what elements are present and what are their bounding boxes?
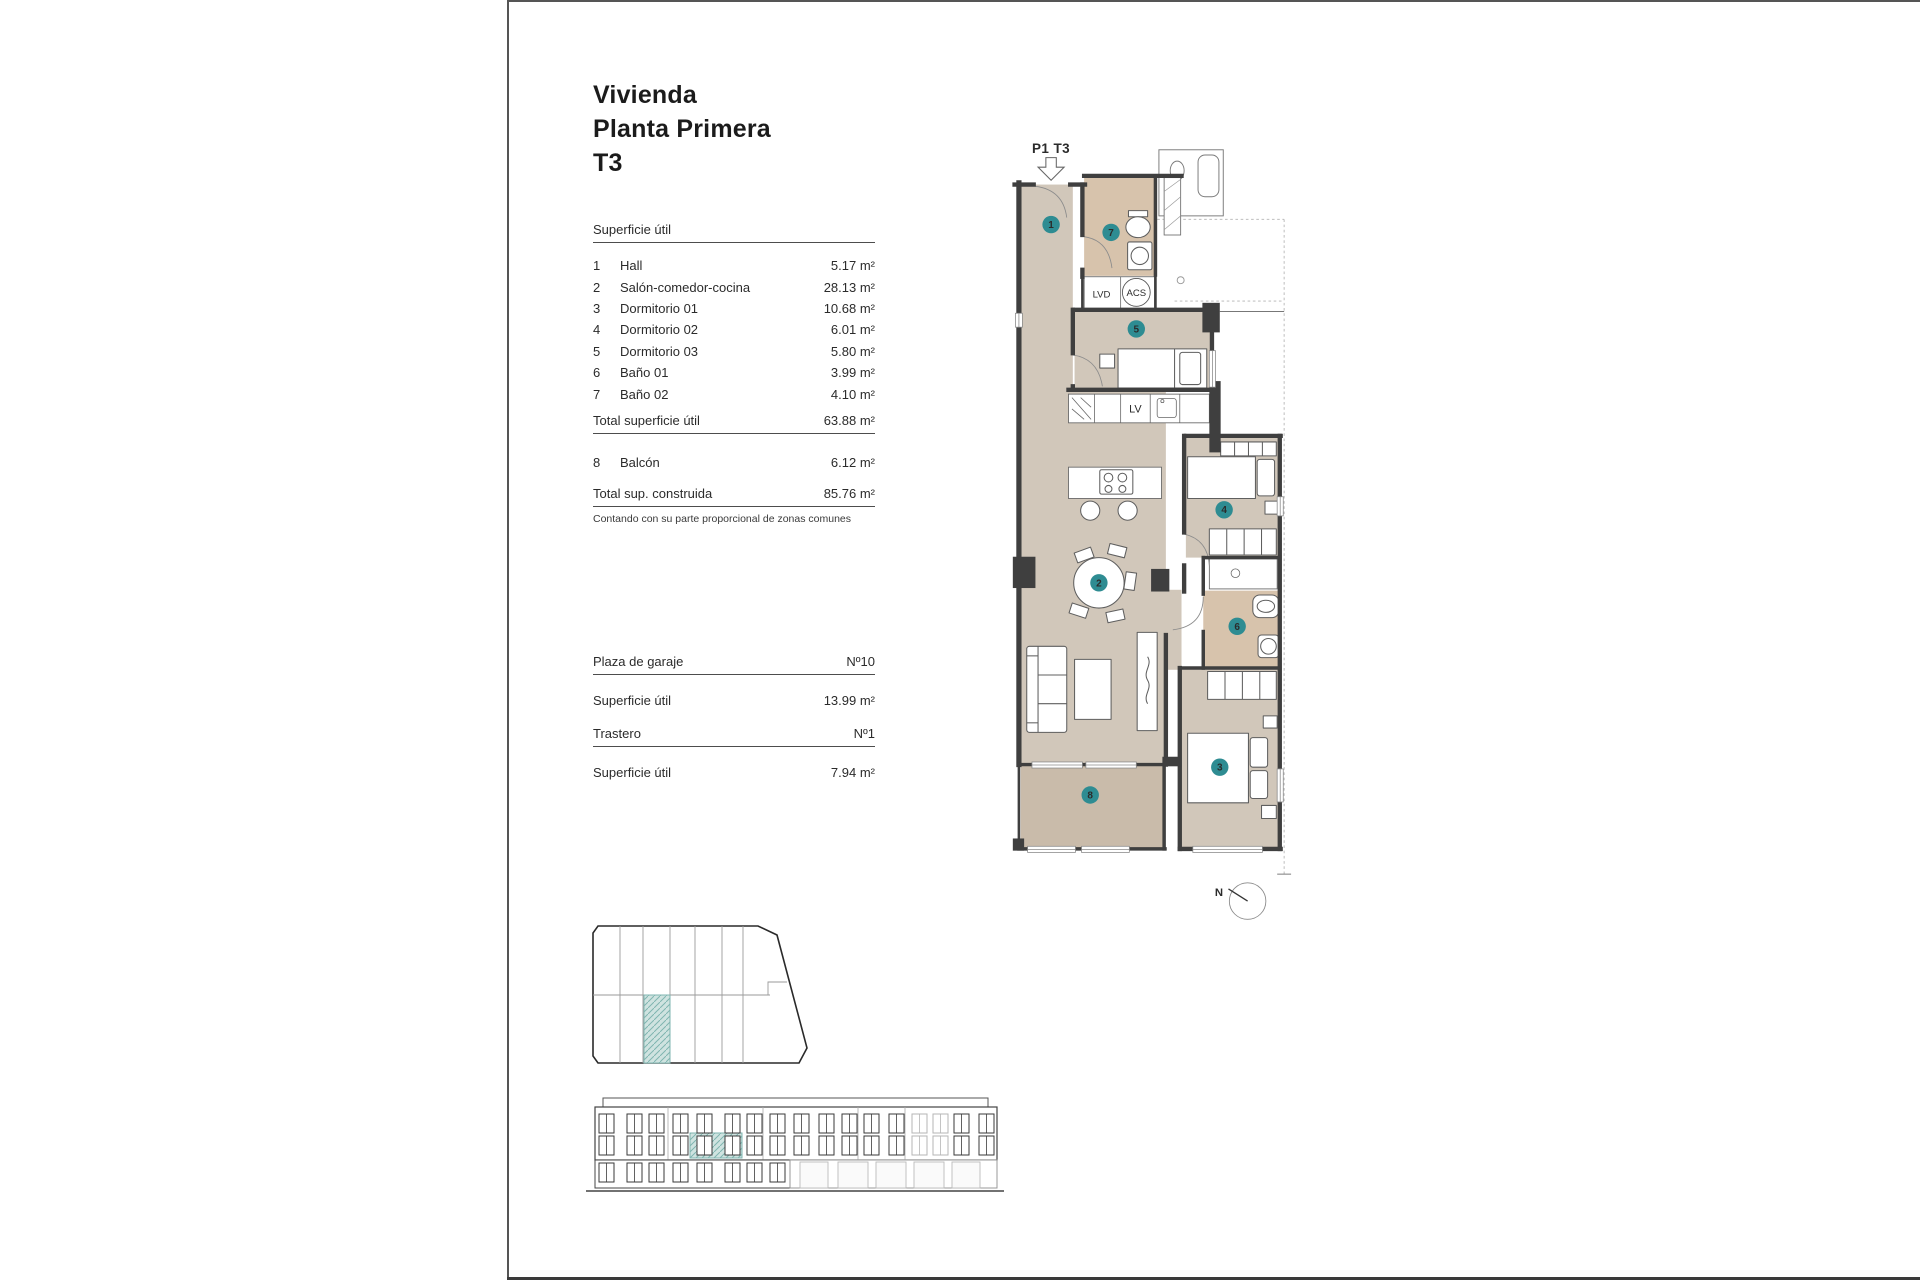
table-header: Superficie útil <box>593 222 875 243</box>
nightstand <box>1263 716 1277 728</box>
unit-label: P1 T3 <box>1032 141 1070 156</box>
tv-unit <box>1137 632 1157 730</box>
storage-section: Trastero Nº1 Superficie útil 7.94 m² <box>593 726 875 780</box>
title-line-3: T3 <box>593 146 771 180</box>
svg-text:7: 7 <box>1108 228 1114 239</box>
room-marker-4: 4 <box>1215 501 1232 518</box>
row-num: 8 <box>593 455 620 470</box>
svg-text:2: 2 <box>1096 578 1102 589</box>
nightstand <box>1262 805 1277 818</box>
garage-number: Nº10 <box>846 654 875 669</box>
washer-label: LVD <box>1093 290 1111 301</box>
table-row: 1 Hall 5.17 m² <box>593 255 875 276</box>
total-built-row: Total sup. construida 85.76 m² Contando … <box>593 486 875 525</box>
row-num: 1 <box>593 258 620 273</box>
row-label: Baño 01 <box>620 365 831 380</box>
stool <box>1118 501 1137 520</box>
table-row: 5 Dormitorio 03 5.80 m² <box>593 341 875 362</box>
row-label: Dormitorio 01 <box>620 301 824 316</box>
room-marker-5: 5 <box>1128 320 1145 337</box>
balcony-row: 8 Balcón 6.12 m² <box>593 452 875 473</box>
row-num: 5 <box>593 344 620 359</box>
table-row: 7 Baño 02 4.10 m² <box>593 383 875 404</box>
toilet-tank <box>1128 211 1147 217</box>
row-value: 6.12 m² <box>831 455 875 470</box>
svg-text:8: 8 <box>1087 790 1093 801</box>
closet-strip <box>1209 529 1276 555</box>
row-value: 4.10 m² <box>831 387 875 402</box>
north-label: N <box>1215 887 1223 899</box>
footprint-outline <box>593 926 807 1063</box>
total-built-label: Total sup. construida <box>593 486 712 501</box>
svg-text:3: 3 <box>1217 763 1223 774</box>
row-label: Hall <box>620 258 831 273</box>
surface-table: Superficie útil 1 Hall 5.17 m² 2 Salón-c… <box>593 222 875 405</box>
stool <box>1081 501 1100 520</box>
shaft <box>1164 178 1181 235</box>
row-num: 2 <box>593 280 620 295</box>
table-row: 6 Baño 01 3.99 m² <box>593 362 875 383</box>
room-marker-7: 7 <box>1102 224 1119 241</box>
room-marker-6: 6 <box>1228 618 1245 635</box>
row-value: 6.01 m² <box>831 322 875 337</box>
title-line-2: Planta Primera <box>593 112 771 146</box>
dishwasher-label: LV <box>1129 403 1142 415</box>
room-marker-3: 3 <box>1211 758 1228 775</box>
row-value: 3.99 m² <box>831 365 875 380</box>
floor-balcony <box>1021 765 1165 848</box>
footnote: Contando con su parte proporcional de zo… <box>593 513 875 525</box>
page-border-left <box>507 0 509 1280</box>
toilet-icon <box>1126 217 1150 238</box>
floor-hall <box>1021 185 1073 394</box>
north-compass: N <box>1215 883 1266 920</box>
row-label: Dormitorio 02 <box>620 322 831 337</box>
storage-area-label: Superficie útil <box>593 765 671 780</box>
nightstand <box>1100 354 1115 368</box>
row-value: 28.13 m² <box>824 280 875 295</box>
title-line-1: Vivienda <box>593 78 771 112</box>
bath1-vanity <box>1209 558 1277 589</box>
row-label: Salón-comedor-cocina <box>620 280 824 295</box>
page-title: Vivienda Planta Primera T3 <box>593 78 771 180</box>
garage-area-value: 13.99 m² <box>824 693 875 708</box>
heater-label: ACS <box>1126 288 1146 299</box>
entry-arrow-icon <box>1038 158 1064 181</box>
garage-area-label: Superficie útil <box>593 693 671 708</box>
sofa <box>1027 646 1067 732</box>
svg-text:4: 4 <box>1221 505 1227 516</box>
table-row: 3 Dormitorio 01 10.68 m² <box>593 298 875 319</box>
coffee-table <box>1075 659 1112 719</box>
table-header-label: Superficie útil <box>593 222 671 237</box>
chair <box>1124 572 1137 591</box>
table-row: 2 Salón-comedor-cocina 28.13 m² <box>593 276 875 297</box>
garage-section: Plaza de garaje Nº10 Superficie útil 13.… <box>593 654 875 708</box>
footprint-diagram <box>585 915 820 1075</box>
total-util-label: Total superficie útil <box>593 413 700 428</box>
row-value: 10.68 m² <box>824 301 875 316</box>
room-marker-1: 1 <box>1042 216 1059 233</box>
page-border-top <box>507 0 1920 2</box>
svg-text:6: 6 <box>1234 622 1240 633</box>
row-num: 7 <box>593 387 620 402</box>
table-row: 4 Dormitorio 02 6.01 m² <box>593 319 875 340</box>
room-marker-2: 2 <box>1090 574 1107 591</box>
total-util-row: Total superficie útil 63.88 m² <box>593 413 875 434</box>
row-num: 4 <box>593 322 620 337</box>
svg-text:5: 5 <box>1134 324 1140 335</box>
elevation-diagram <box>578 1088 1010 1200</box>
garage-label: Plaza de garaje <box>593 654 683 669</box>
storage-label: Trastero <box>593 726 641 741</box>
row-label: Baño 02 <box>620 387 831 402</box>
table-rows: 1 Hall 5.17 m² 2 Salón-comedor-cocina 28… <box>593 255 875 405</box>
row-label: Balcón <box>620 455 831 470</box>
bed-dorm2 <box>1188 457 1256 499</box>
row-num: 3 <box>593 301 620 316</box>
plan-sheet: Vivienda Planta Primera T3 Superficie út… <box>0 0 1920 1280</box>
total-util-value: 63.88 m² <box>824 413 875 428</box>
row-value: 5.80 m² <box>831 344 875 359</box>
compass-needle-icon <box>1228 889 1247 901</box>
room-marker-8: 8 <box>1082 786 1099 803</box>
row-value: 5.17 m² <box>831 258 875 273</box>
storage-area-value: 7.94 m² <box>831 765 875 780</box>
storage-number: Nº1 <box>854 726 875 741</box>
hob <box>1100 470 1133 494</box>
floor-plan: LVD ACS LV P1 T3 1 2 3 4 <box>1005 135 1350 1035</box>
footprint-highlight-unit <box>644 995 670 1063</box>
row-label: Dormitorio 03 <box>620 344 831 359</box>
svg-text:1: 1 <box>1048 220 1054 231</box>
total-built-value: 85.76 m² <box>824 486 875 501</box>
row-num: 6 <box>593 365 620 380</box>
